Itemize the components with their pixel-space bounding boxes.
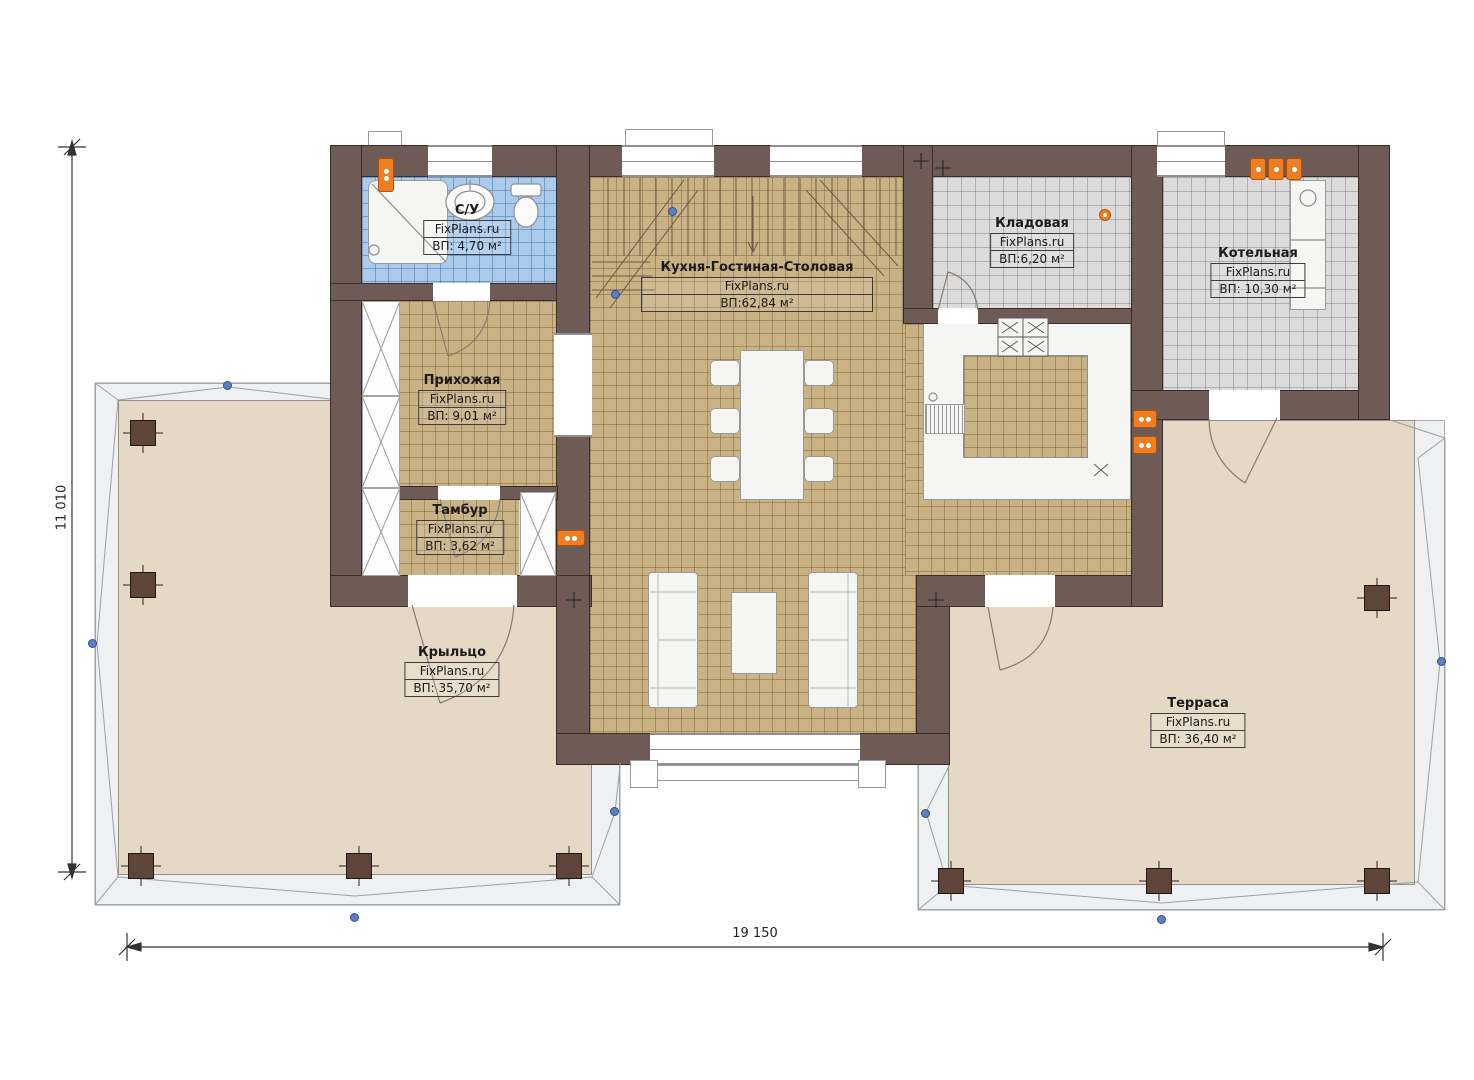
door-opening-kitchen-terrace (985, 575, 1055, 607)
wall-light-icon (1250, 158, 1266, 180)
roof-post (130, 572, 156, 598)
snap-marker (223, 381, 232, 390)
room-label-hallway: Прихожая FixPlans.ruВП: 9,01 м² (418, 373, 506, 425)
chair (804, 360, 834, 386)
ceiling-light-icon (1099, 209, 1111, 221)
wall-light-icon (378, 158, 394, 192)
chair (710, 360, 740, 386)
room-source-watermark: FixPlans.ru (1211, 264, 1304, 281)
snap-marker (1437, 657, 1446, 666)
chair (710, 456, 740, 482)
snap-marker (668, 207, 677, 216)
roof-post (556, 853, 582, 879)
room-label-storage: Кладовая FixPlans.ruВП:6,20 м² (990, 216, 1074, 268)
snap-marker (611, 290, 620, 299)
window (770, 145, 862, 177)
room-area: ВП:62,84 м² (642, 295, 872, 311)
room-label-vestibule: Тамбур FixPlans.ruВП: 3,62 м² (416, 503, 504, 555)
dimension-width-label: 19 150 (715, 926, 795, 941)
room-area: ВП: 35,70 м² (405, 680, 498, 696)
door-opening-vestibule (438, 486, 500, 500)
wall-light-icon (1133, 436, 1157, 454)
room-name: Котельная (1210, 246, 1305, 261)
dimension-height-label: 11 010 (55, 478, 70, 538)
room-area: ВП: 3,62 м² (417, 538, 503, 554)
wall-light-icon (1133, 410, 1157, 428)
wardrobe (362, 396, 400, 488)
snap-marker (350, 913, 359, 922)
chair (804, 456, 834, 482)
chair (710, 408, 740, 434)
window (1157, 145, 1225, 177)
terrace-floor (948, 607, 1163, 885)
room-name: Прихожая (418, 373, 506, 388)
room-source-watermark: FixPlans.ru (417, 521, 503, 538)
wardrobe (520, 492, 556, 576)
room-area: ВП: 4,70 м² (424, 238, 510, 254)
room-label-kitchen-living-dining: Кухня-Гостиная-Столовая FixPlans.ruВП:62… (641, 260, 873, 312)
wardrobe (362, 488, 400, 576)
wall-light-icon (1286, 158, 1302, 180)
dishwasher-icon (925, 404, 965, 434)
porch-step (858, 760, 886, 788)
sofa (808, 572, 858, 708)
roof-post (130, 420, 156, 446)
room-name: Тамбур (416, 503, 504, 518)
room-source-watermark: FixPlans.ru (642, 278, 872, 295)
room-name: Крыльцо (404, 645, 499, 660)
sofa (648, 572, 698, 708)
terrace-floor (1163, 420, 1415, 885)
room-name: С/У (423, 203, 511, 218)
room-label-boiler-room: Котельная FixPlans.ruВП: 10,30 м² (1210, 246, 1305, 298)
room-name: Кухня-Гостиная-Столовая (641, 260, 873, 275)
roof-post (1364, 585, 1390, 611)
roof-post (128, 853, 154, 879)
room-source-watermark: FixPlans.ru (405, 663, 498, 680)
chair (804, 408, 834, 434)
room-source-watermark: FixPlans.ru (991, 234, 1073, 251)
window-bay (650, 733, 860, 765)
floor-plan: С/У FixPlans.ruВП: 4,70 м² Кухня-Гостина… (0, 0, 1474, 1080)
room-area: ВП: 10,30 м² (1211, 281, 1304, 297)
passage-hallway-living (554, 333, 592, 437)
snap-marker (1157, 915, 1166, 924)
snap-marker (921, 809, 930, 818)
wall (903, 145, 933, 324)
snap-marker (610, 807, 619, 816)
wardrobe (362, 301, 400, 396)
snap-marker (88, 639, 97, 648)
kitchen-island-floor (963, 355, 1088, 458)
room-area: ВП:6,20 м² (991, 251, 1073, 267)
room-source-watermark: FixPlans.ru (1151, 714, 1244, 731)
room-label-porch: Крыльцо FixPlans.ruВП: 35,70 м² (404, 645, 499, 697)
room-name: Кладовая (990, 216, 1074, 231)
window (622, 145, 714, 177)
wall (1131, 145, 1163, 607)
room-label-bathroom: С/У FixPlans.ruВП: 4,70 м² (423, 203, 511, 255)
room-label-terrace: Терраса FixPlans.ruВП: 36,40 м² (1150, 696, 1245, 748)
wall-light-icon (557, 530, 585, 546)
room-source-watermark: FixPlans.ru (424, 221, 510, 238)
wall-light-icon (1268, 158, 1284, 180)
room-source-watermark: FixPlans.ru (419, 391, 505, 408)
porch-step (630, 760, 658, 788)
door-opening-entry (408, 575, 517, 607)
wall (330, 145, 362, 607)
door-opening-bathroom (433, 283, 490, 301)
roof-post (1364, 868, 1390, 894)
window (428, 145, 492, 177)
room-name: Терраса (1150, 696, 1245, 711)
door-opening-storage (938, 308, 978, 324)
dining-table (740, 350, 804, 500)
roof-post (938, 868, 964, 894)
door-opening-boiler-terrace (1209, 390, 1280, 420)
room-area: ВП: 9,01 м² (419, 408, 505, 424)
room-area: ВП: 36,40 м² (1151, 731, 1244, 747)
porch-step (644, 765, 866, 781)
coffee-table (731, 592, 777, 674)
roof-post (346, 853, 372, 879)
wall (1358, 145, 1390, 420)
roof-post (1146, 868, 1172, 894)
